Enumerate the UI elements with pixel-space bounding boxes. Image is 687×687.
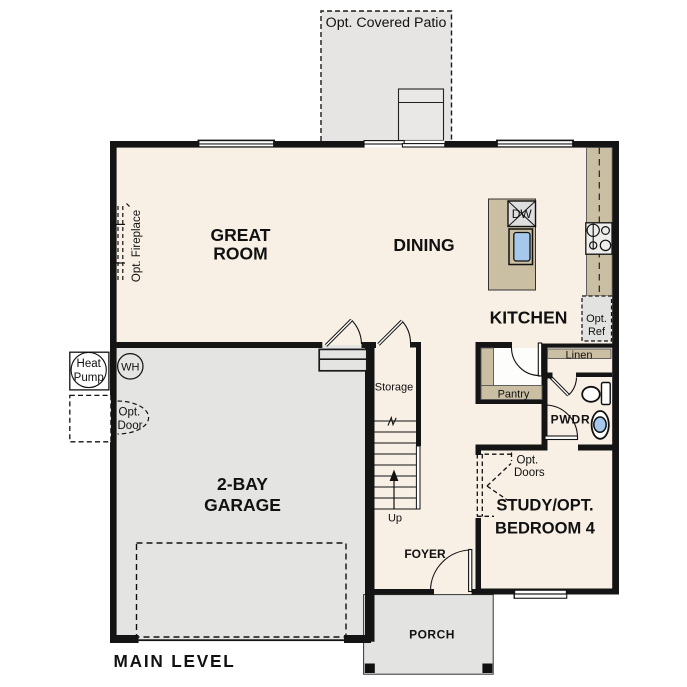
svg-text:Storage: Storage xyxy=(375,382,414,394)
svg-text:KITCHEN: KITCHEN xyxy=(490,308,568,328)
svg-text:Opt. Fireplace: Opt. Fireplace xyxy=(131,210,143,282)
svg-text:MAIN LEVEL: MAIN LEVEL xyxy=(114,651,236,671)
svg-text:2-BAY: 2-BAY xyxy=(217,474,268,494)
svg-text:Heat: Heat xyxy=(77,358,102,370)
svg-text:Opt.: Opt. xyxy=(517,455,539,467)
svg-text:Ref: Ref xyxy=(588,326,606,338)
svg-text:DINING: DINING xyxy=(393,235,454,255)
svg-text:BEDROOM 4: BEDROOM 4 xyxy=(495,520,596,538)
svg-text:Up: Up xyxy=(388,513,402,525)
svg-text:Opt. Covered Patio: Opt. Covered Patio xyxy=(326,15,447,31)
svg-text:STUDY/OPT.: STUDY/OPT. xyxy=(496,497,593,515)
svg-text:Doors: Doors xyxy=(514,467,545,479)
svg-text:Pantry: Pantry xyxy=(498,389,530,401)
svg-text:GARAGE: GARAGE xyxy=(204,495,281,515)
svg-text:Linen: Linen xyxy=(566,350,593,362)
svg-text:Opt.: Opt. xyxy=(586,313,607,325)
svg-text:Opt.: Opt. xyxy=(119,407,141,419)
svg-text:ROOM: ROOM xyxy=(213,244,267,264)
svg-text:GREAT: GREAT xyxy=(211,225,271,245)
svg-text:Door: Door xyxy=(118,420,143,432)
svg-text:DW: DW xyxy=(512,207,533,221)
svg-text:WH: WH xyxy=(121,362,139,374)
svg-text:FOYER: FOYER xyxy=(404,547,446,561)
svg-text:Pump: Pump xyxy=(74,372,104,384)
svg-text:PORCH: PORCH xyxy=(409,628,455,642)
svg-text:PWDR: PWDR xyxy=(551,413,591,427)
